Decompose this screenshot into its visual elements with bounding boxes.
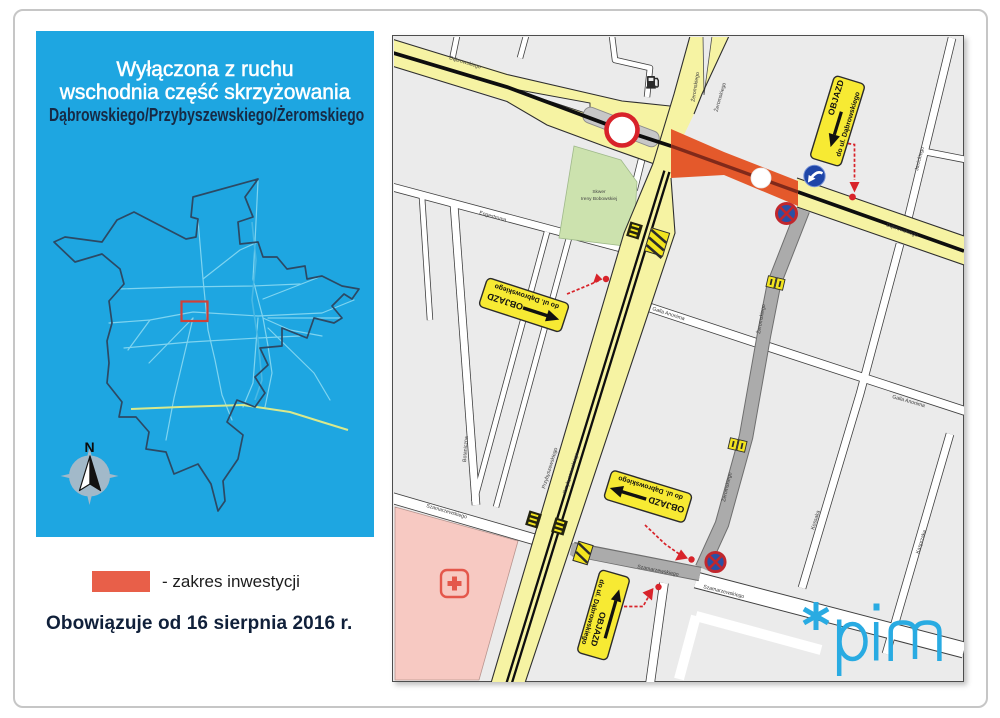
svg-text:Żeromskiego: Żeromskiego [712,81,727,112]
svg-text:N: N [84,439,94,455]
svg-text:Ireny Bobowskiej: Ireny Bobowskiej [580,196,616,202]
svg-text:Skwer: Skwer [592,189,606,195]
